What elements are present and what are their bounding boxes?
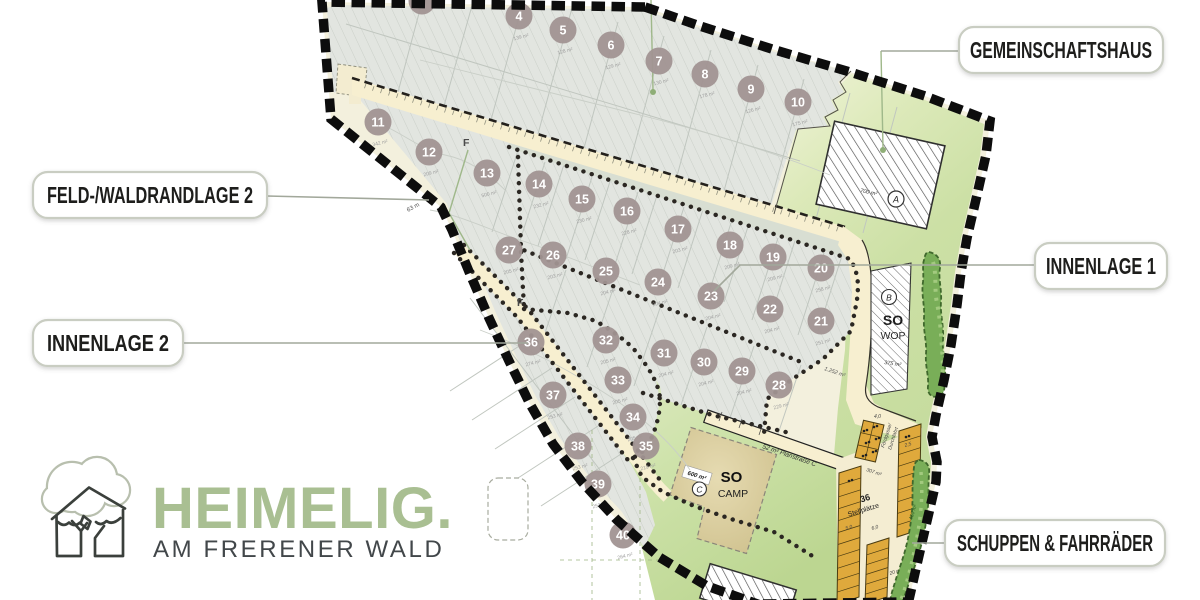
svg-text:12: 12 [422, 146, 436, 160]
svg-text:10: 10 [791, 96, 805, 110]
svg-text:22: 22 [763, 303, 777, 317]
svg-text:INNENLAGE 2: INNENLAGE 2 [47, 330, 169, 356]
svg-text:SO: SO [883, 312, 903, 328]
svg-text:8: 8 [702, 68, 709, 82]
svg-text:7: 7 [656, 55, 663, 69]
svg-text:37: 37 [546, 389, 560, 403]
svg-text:C: C [696, 485, 703, 495]
svg-text:4: 4 [516, 10, 523, 24]
svg-text:HEIMELIG.: HEIMELIG. [152, 476, 453, 541]
svg-text:B: B [886, 293, 892, 303]
svg-text:15: 15 [575, 193, 589, 207]
svg-text:25: 25 [599, 265, 613, 279]
svg-text:38: 38 [571, 440, 585, 454]
svg-text:28: 28 [772, 379, 786, 393]
svg-text:13: 13 [480, 167, 494, 181]
svg-text:18: 18 [723, 239, 737, 253]
svg-text:14: 14 [532, 178, 546, 192]
svg-text:35: 35 [639, 440, 653, 454]
svg-text:16: 16 [620, 205, 634, 219]
svg-text:29: 29 [735, 365, 749, 379]
svg-text:11: 11 [371, 116, 384, 130]
svg-text:32: 32 [599, 334, 613, 348]
svg-text:20: 20 [814, 262, 828, 276]
svg-text:21: 21 [814, 315, 828, 329]
svg-text:CAMP: CAMP [718, 488, 748, 500]
svg-text:6: 6 [608, 39, 615, 53]
svg-text:GEMEINSCHAFTSHAUS: GEMEINSCHAFTSHAUS [970, 37, 1152, 63]
svg-text:9: 9 [748, 83, 755, 97]
svg-text:26: 26 [546, 249, 560, 263]
svg-text:WOP: WOP [880, 330, 905, 342]
svg-text:17: 17 [671, 223, 685, 237]
svg-text:F: F [517, 297, 524, 309]
svg-text:23: 23 [704, 290, 718, 304]
svg-text:F: F [463, 137, 470, 149]
svg-text:27: 27 [502, 244, 516, 258]
svg-text:34: 34 [626, 411, 640, 425]
svg-text:24: 24 [651, 276, 665, 290]
svg-text:33: 33 [611, 374, 625, 388]
svg-text:31: 31 [657, 347, 671, 361]
svg-text:SO: SO [721, 469, 743, 486]
svg-text:AM FRERENER WALD: AM FRERENER WALD [153, 536, 444, 563]
svg-text:19: 19 [766, 251, 780, 265]
svg-text:SCHUPPEN & FAHRRÄDER: SCHUPPEN & FAHRRÄDER [957, 530, 1153, 556]
svg-text:4,0: 4,0 [874, 414, 881, 420]
svg-text:FELD-/WALDRANDLAGE 2: FELD-/WALDRANDLAGE 2 [47, 182, 253, 208]
svg-text:INNENLAGE 1: INNENLAGE 1 [1046, 253, 1156, 279]
svg-text:30: 30 [697, 356, 711, 370]
svg-text:5: 5 [560, 24, 567, 38]
svg-text:A: A [892, 195, 899, 205]
